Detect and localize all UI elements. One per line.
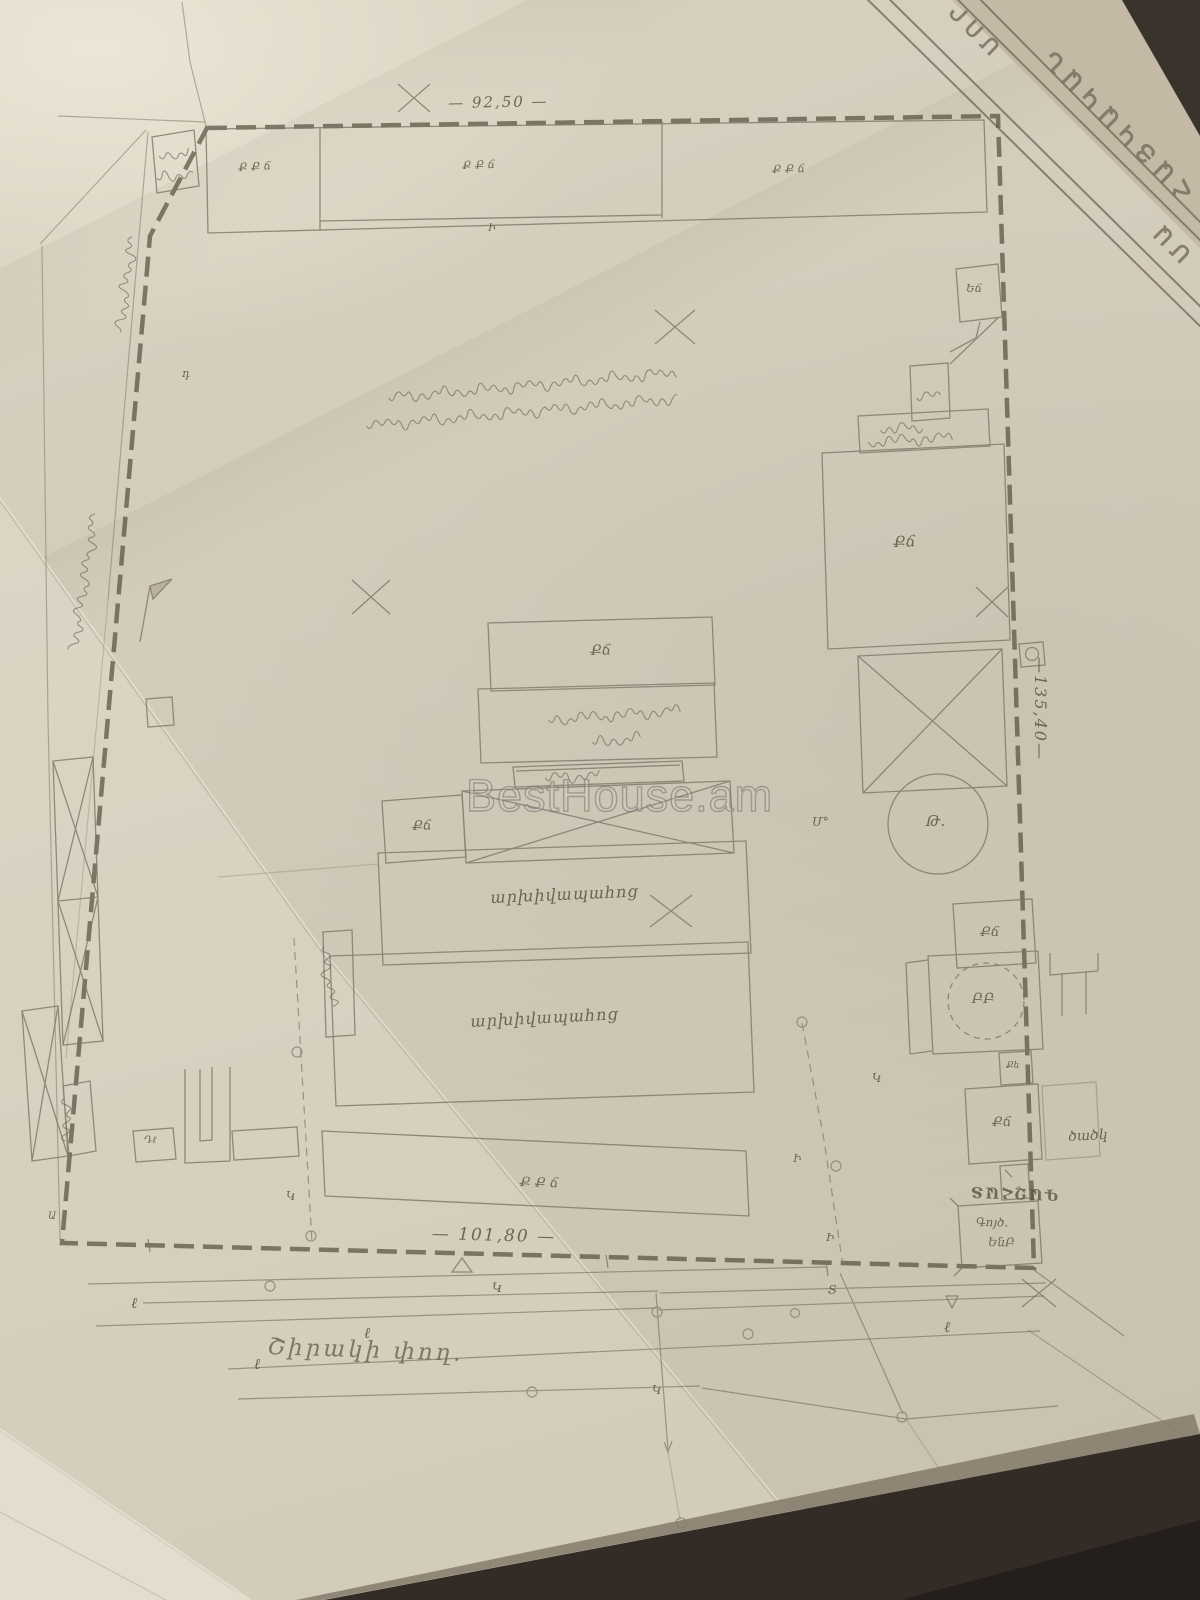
right-big-room-label: Քճ [893, 534, 916, 550]
right-room-1-label: Քճ [980, 926, 999, 939]
handwriting-squiggle [592, 731, 641, 744]
utility-letter-i: Ի [826, 1232, 835, 1243]
round-tank-label: ԲԲ [972, 992, 995, 1006]
canopy-label: ծածկ [1068, 1128, 1108, 1144]
road-letter: դ [182, 368, 190, 379]
utility-letter-i: Ի [793, 1153, 802, 1164]
top-dimension: — 92,50 — [448, 94, 549, 111]
bottom-building-label: Ք Ք ճ [520, 1176, 559, 1190]
center-small-room-label: Քճ [412, 819, 432, 833]
utility-letter-l: ℓ [254, 1357, 260, 1372]
utility-letter-k: Կ [652, 1384, 662, 1396]
site-plan-photo: Ք Ք ճ Ք Ք ճ Ք Ք ճ Ի — 92,50 — —135,40— —… [0, 0, 1200, 1600]
utility-letter-k: Կ [492, 1282, 502, 1295]
pump-circle-label: Թ. [926, 814, 945, 829]
strip-sub-label: Ի [488, 224, 496, 234]
bottom-dimension: — 101,80 — [432, 1226, 557, 1246]
right-small-room-label: Քե [1006, 1062, 1019, 1071]
utility-letter-k: Կ [286, 1190, 296, 1202]
utility-letter-k: Կ [872, 1072, 882, 1084]
utility-letter-l: ℓ [131, 1296, 137, 1311]
corner-booth-label: Եճ [966, 283, 982, 294]
right-dimension: —135,40— [1032, 657, 1048, 761]
substation-label-line1: Գոյծ. [976, 1216, 1009, 1229]
small-shed-label: Դℓ [144, 1136, 156, 1146]
meter-mark-label: Մ° [812, 816, 829, 828]
strip-cell-1-label: Ք Ք ճ [238, 160, 271, 173]
utility-letter-t: Տ [828, 1284, 837, 1296]
gas-station-label: ԳԱԶՀԱՏ [969, 1184, 1059, 1202]
utility-letter-l: ℓ [944, 1320, 950, 1335]
handwriting-squiggle [916, 388, 943, 400]
watermark: BestHouse.am [466, 770, 773, 822]
strip-cell-3-label: Ք Ք ճ [772, 163, 805, 175]
substation-label-line2: ԵնԲ [988, 1236, 1015, 1248]
strip-cell-2-label: Ք Ք ճ [462, 159, 495, 171]
center-building-label: Քճ [590, 643, 611, 658]
handwriting-squiggle [880, 420, 925, 432]
right-room-2-label: Քճ [992, 1116, 1011, 1129]
left-letter: Ա [48, 1212, 56, 1222]
